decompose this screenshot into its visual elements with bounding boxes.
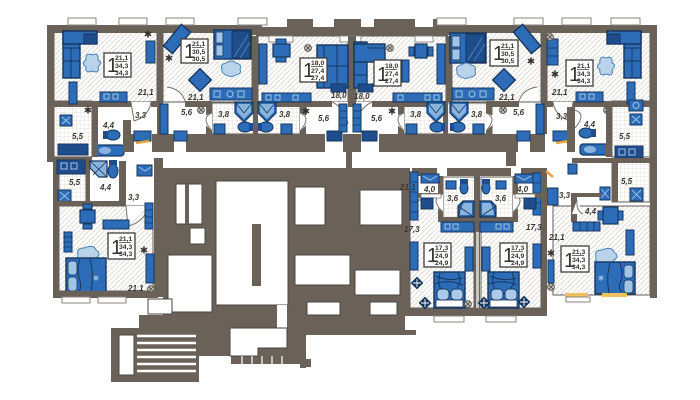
svg-text:21,1: 21,1	[115, 55, 128, 62]
svg-text:27,4: 27,4	[311, 68, 324, 75]
svg-text:4,4: 4,4	[102, 121, 115, 130]
svg-text:5,5: 5,5	[619, 132, 631, 141]
svg-text:30,5: 30,5	[501, 51, 514, 58]
svg-text:21,1: 21,1	[119, 236, 132, 243]
svg-text:21,3: 21,3	[572, 249, 585, 256]
svg-text:30,5: 30,5	[192, 49, 205, 56]
svg-text:3,8: 3,8	[279, 110, 291, 119]
svg-text:21,1: 21,1	[399, 183, 416, 192]
svg-text:3,3: 3,3	[135, 111, 147, 120]
svg-text:3,8: 3,8	[471, 110, 483, 119]
svg-text:5,6: 5,6	[371, 114, 383, 123]
svg-text:27,4: 27,4	[311, 75, 324, 82]
svg-text:34,3: 34,3	[115, 70, 128, 77]
svg-text:24,9: 24,9	[435, 253, 448, 260]
svg-text:3,3: 3,3	[556, 112, 568, 121]
svg-text:34,3: 34,3	[572, 264, 585, 271]
svg-text:24,9: 24,9	[511, 253, 524, 260]
svg-text:21,1: 21,1	[551, 88, 568, 97]
svg-text:18,0: 18,0	[354, 92, 370, 101]
svg-text:5,6: 5,6	[318, 114, 330, 123]
svg-text:3,8: 3,8	[218, 110, 230, 119]
svg-text:34,3: 34,3	[115, 63, 128, 70]
svg-text:5,5: 5,5	[72, 132, 84, 141]
svg-text:18,0: 18,0	[385, 63, 398, 70]
svg-text:5,5: 5,5	[69, 178, 81, 187]
svg-text:3,3: 3,3	[128, 193, 140, 202]
svg-text:4,4: 4,4	[99, 183, 112, 192]
svg-text:21,1: 21,1	[192, 41, 205, 48]
svg-text:17,3: 17,3	[404, 225, 420, 234]
svg-text:34,3: 34,3	[572, 257, 585, 264]
svg-text:30,5: 30,5	[192, 56, 205, 63]
svg-text:17,3: 17,3	[435, 245, 448, 252]
svg-text:18,0: 18,0	[311, 60, 324, 67]
svg-text:21,1: 21,1	[498, 93, 515, 102]
svg-text:34,3: 34,3	[577, 78, 590, 85]
svg-text:34,3: 34,3	[577, 71, 590, 78]
svg-text:21,1: 21,1	[577, 63, 590, 70]
svg-text:24,9: 24,9	[511, 260, 524, 267]
svg-text:24,9: 24,9	[435, 260, 448, 267]
svg-text:21,1: 21,1	[548, 233, 565, 242]
svg-text:21,1: 21,1	[501, 43, 514, 50]
svg-text:4,4: 4,4	[584, 207, 597, 216]
svg-text:17,3: 17,3	[526, 223, 542, 232]
svg-text:3,6: 3,6	[447, 194, 459, 203]
svg-text:3,6: 3,6	[495, 194, 507, 203]
svg-text:27,4: 27,4	[385, 78, 398, 85]
svg-text:5,6: 5,6	[513, 108, 525, 117]
svg-text:34,3: 34,3	[119, 244, 132, 251]
svg-text:5,5: 5,5	[621, 177, 633, 186]
svg-text:30,5: 30,5	[501, 58, 514, 65]
svg-text:17,3: 17,3	[511, 245, 524, 252]
svg-text:4,0: 4,0	[423, 185, 436, 194]
svg-text:3,8: 3,8	[410, 110, 422, 119]
svg-text:34,3: 34,3	[119, 251, 132, 258]
svg-text:21,1: 21,1	[137, 88, 154, 97]
svg-text:4,0: 4,0	[516, 185, 529, 194]
svg-text:27,4: 27,4	[385, 71, 398, 78]
svg-text:4,4: 4,4	[583, 120, 596, 129]
svg-text:3,3: 3,3	[559, 191, 571, 200]
svg-text:5,6: 5,6	[181, 108, 193, 117]
svg-text:21,1: 21,1	[187, 93, 204, 102]
